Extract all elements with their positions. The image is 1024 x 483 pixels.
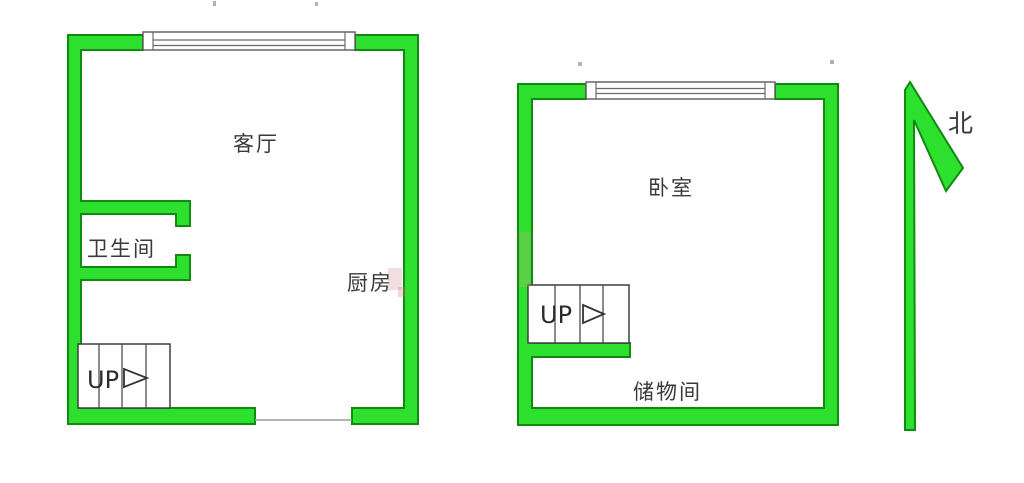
staircase: UP bbox=[528, 285, 629, 343]
watermark-artifact bbox=[519, 232, 531, 287]
room-label-living-room: 客厅 bbox=[233, 132, 279, 156]
tick-mark bbox=[213, 1, 216, 6]
wall-left-right-side bbox=[352, 35, 418, 424]
room-label-storage: 储物间 bbox=[633, 380, 702, 404]
north-arrow: 北 bbox=[905, 82, 973, 430]
window bbox=[586, 82, 775, 99]
tick-mark bbox=[315, 2, 318, 6]
watermark-artifact bbox=[388, 268, 402, 290]
room-label-bedroom: 卧室 bbox=[648, 176, 694, 200]
tick-mark bbox=[578, 62, 582, 66]
right-floor-plan: UP 卧室 储物间 bbox=[518, 82, 838, 425]
room-label-bathroom: 卫生间 bbox=[87, 237, 156, 261]
floor-plan-image: UP 客厅 卫生间 厨房 UP 卧室 储物间 bbox=[0, 0, 1024, 483]
wall-right-main bbox=[518, 84, 838, 425]
tick-mark bbox=[830, 60, 834, 64]
north-label: 北 bbox=[948, 109, 973, 138]
window-frame bbox=[143, 32, 355, 50]
staircase: UP bbox=[78, 344, 170, 408]
watermark-artifact bbox=[398, 287, 406, 297]
window bbox=[143, 32, 355, 50]
stairs-up-label: UP bbox=[87, 366, 119, 394]
left-floor-plan: UP 客厅 卫生间 厨房 bbox=[68, 32, 418, 424]
room-label-kitchen: 厨房 bbox=[347, 271, 393, 295]
window-frame bbox=[586, 82, 775, 99]
stairs-up-label: UP bbox=[540, 301, 572, 329]
